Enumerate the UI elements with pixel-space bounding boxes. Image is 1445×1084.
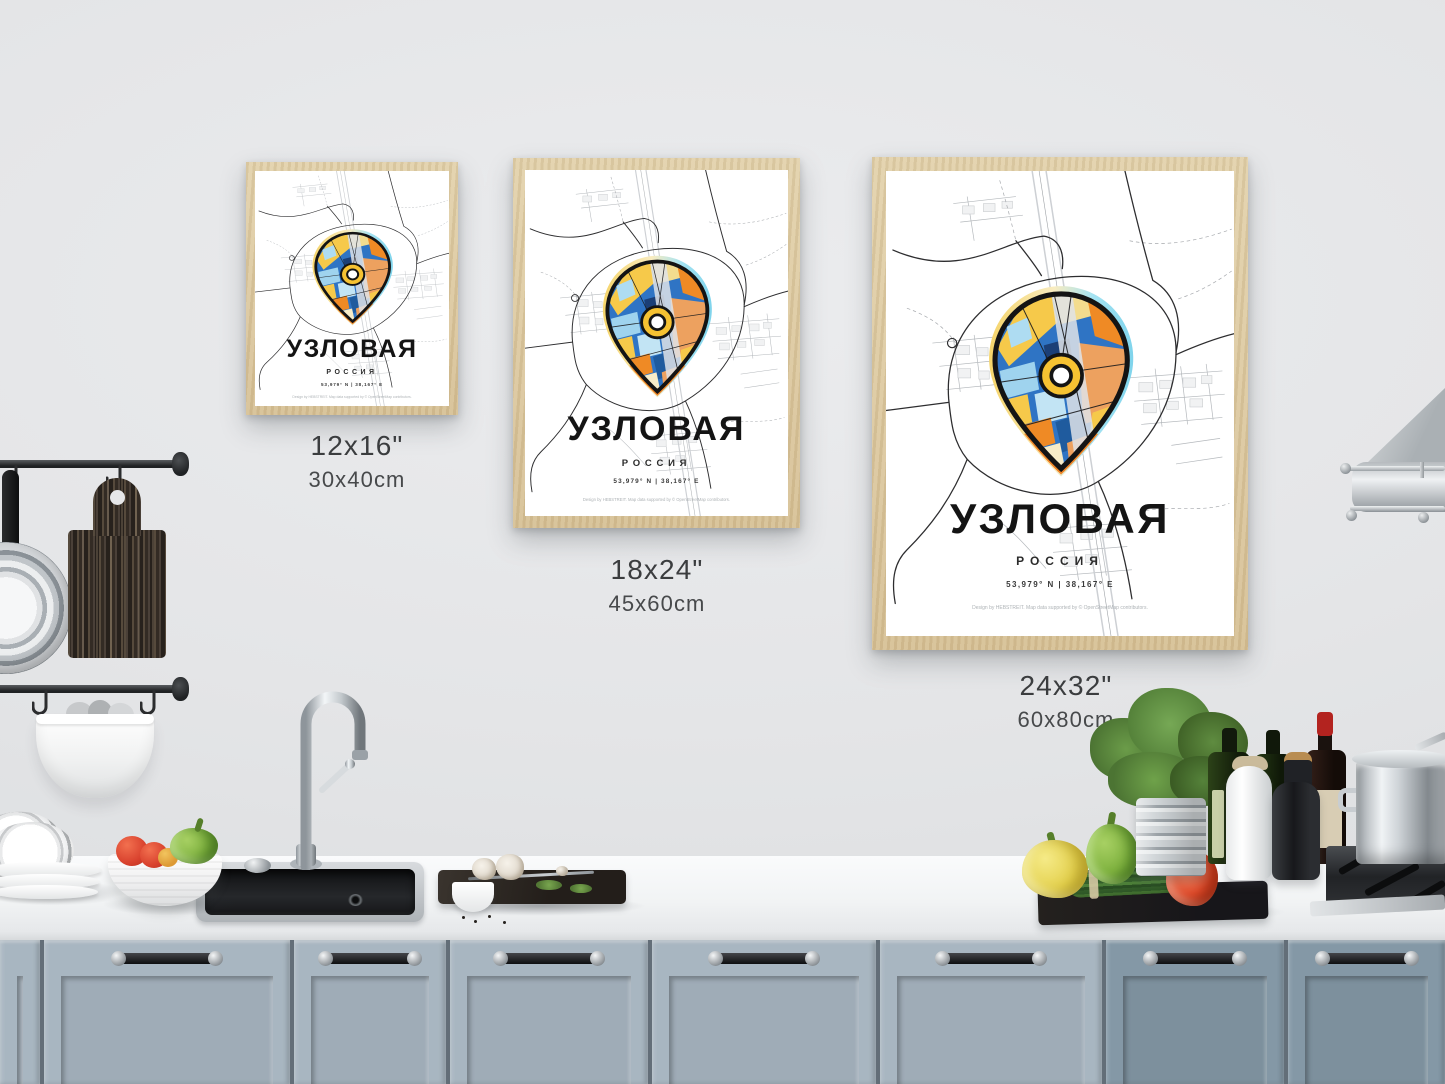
door-panel <box>669 976 859 1084</box>
kitchen-mockup-scene: УЗЛОВАЯ РОССИЯ 53,979° N | 38,167° E Des… <box>0 0 1445 1084</box>
size-inches: 18x24" <box>557 554 757 586</box>
herbs <box>570 884 592 893</box>
poster-credit: Design by HEBSTREIT. Map data supported … <box>255 395 449 399</box>
poster-country: РОССИЯ <box>255 369 449 376</box>
door-panel <box>897 976 1085 1084</box>
door-handle <box>119 953 215 964</box>
stock-pot <box>1356 760 1445 864</box>
hood-rail-post <box>1420 462 1424 478</box>
pot-lid <box>1352 750 1445 768</box>
yellow-bell-pepper <box>1022 840 1088 898</box>
peppercorn <box>462 916 465 919</box>
size-inches: 12x16" <box>262 430 452 462</box>
cabinet-door <box>44 940 290 1084</box>
plant-tin-pot <box>1136 798 1206 876</box>
rail-finial <box>172 677 189 701</box>
board-hole <box>110 490 125 505</box>
wall-rail-bottom <box>0 685 188 693</box>
door-handle <box>1151 953 1239 964</box>
peppercorn <box>503 921 506 924</box>
cabinet-door <box>0 940 40 1084</box>
white-pepper-mill <box>1226 766 1272 880</box>
garlic-bulb <box>496 854 524 880</box>
door-panel <box>311 976 429 1084</box>
door-handle <box>943 953 1039 964</box>
cabinet-door <box>294 940 446 1084</box>
hood-rail <box>1344 466 1445 471</box>
black-pepper-mill <box>1272 782 1320 880</box>
hood-rail-knob <box>1340 463 1351 474</box>
door-handle <box>716 953 812 964</box>
lower-cabinets <box>0 940 1445 1084</box>
cabinet-door <box>880 940 1102 1084</box>
bottle-label <box>1212 790 1224 858</box>
poster-coordinates: 53,979° N | 38,167° E <box>525 478 788 485</box>
pan-handle <box>2 470 19 552</box>
size-label-small: 12x16" 30x40cm <box>262 430 452 493</box>
poster-coordinates: 53,979° N | 38,167° E <box>886 580 1234 589</box>
green-pepper-in-bowl <box>170 828 218 864</box>
sink-drain <box>348 894 363 906</box>
cabinet-door <box>450 940 648 1084</box>
poster-credit: Design by HEBSTREIT. Map data supported … <box>886 605 1234 611</box>
poster-medium-print: УЗЛОВАЯ РОССИЯ 53,979° N | 38,167° E Des… <box>525 170 788 516</box>
peppercorn <box>488 915 491 918</box>
poster-caption: УЗЛОВАЯ РОССИЯ 53,979° N | 38,167° E Des… <box>525 412 788 502</box>
poster-small: УЗЛОВАЯ РОССИЯ 53,979° N | 38,167° E Des… <box>246 162 458 415</box>
poster-large-print: УЗЛОВАЯ РОССИЯ 53,979° N | 38,167° E Des… <box>886 171 1234 636</box>
door-handle <box>326 953 414 964</box>
size-cm: 45x60cm <box>557 591 757 617</box>
poster-country: РОССИЯ <box>525 458 788 469</box>
size-cm: 30x40cm <box>262 467 452 493</box>
door-panel <box>1305 976 1428 1084</box>
faucet <box>258 640 378 870</box>
hood-rail-lower <box>1350 506 1445 511</box>
hood-rail-knob <box>1346 510 1357 521</box>
size-label-medium: 18x24" 45x60cm <box>557 554 757 617</box>
cabinet-door <box>1106 940 1284 1084</box>
garlic-bulb <box>472 858 496 880</box>
poster-country: РОССИЯ <box>886 554 1234 568</box>
door-panel <box>17 976 23 1084</box>
hanging-cutting-board <box>68 530 166 658</box>
wall-rail-top <box>0 460 188 468</box>
door-handle <box>1323 953 1411 964</box>
poster-large: УЗЛОВАЯ РОССИЯ 53,979° N | 38,167° E Des… <box>872 157 1248 650</box>
poster-small-print: УЗЛОВАЯ РОССИЯ 53,979° N | 38,167° E Des… <box>255 171 449 406</box>
wine-capsule <box>1317 712 1333 736</box>
cabinet-door <box>1288 940 1445 1084</box>
board-handle <box>93 478 141 536</box>
poster-caption: УЗЛОВАЯ РОССИЯ 53,979° N | 38,167° E Des… <box>255 336 449 399</box>
poster-medium: УЗЛОВАЯ РОССИЯ 53,979° N | 38,167° E Des… <box>513 158 800 528</box>
door-panel <box>61 976 273 1084</box>
utensil-holder-rim <box>36 714 154 724</box>
poster-title: УЗЛОВАЯ <box>525 412 788 448</box>
peppercorn <box>474 920 477 923</box>
poster-title: УЗЛОВАЯ <box>255 336 449 362</box>
door-handle <box>501 953 597 964</box>
hood-rail-knob <box>1418 512 1429 523</box>
rail-finial <box>172 452 189 476</box>
green-bell-pepper <box>1086 824 1138 884</box>
poster-coordinates: 53,979° N | 38,167° E <box>255 382 449 387</box>
herbs <box>536 880 562 890</box>
poster-caption: УЗЛОВАЯ РОССИЯ 53,979° N | 38,167° E Des… <box>886 497 1234 611</box>
door-panel <box>1123 976 1267 1084</box>
poster-title: УЗЛОВАЯ <box>886 497 1234 541</box>
door-panel <box>467 976 631 1084</box>
poster-credit: Design by HEBSTREIT. Map data supported … <box>525 497 788 502</box>
garlic-clove <box>556 866 568 876</box>
cabinet-door <box>652 940 876 1084</box>
